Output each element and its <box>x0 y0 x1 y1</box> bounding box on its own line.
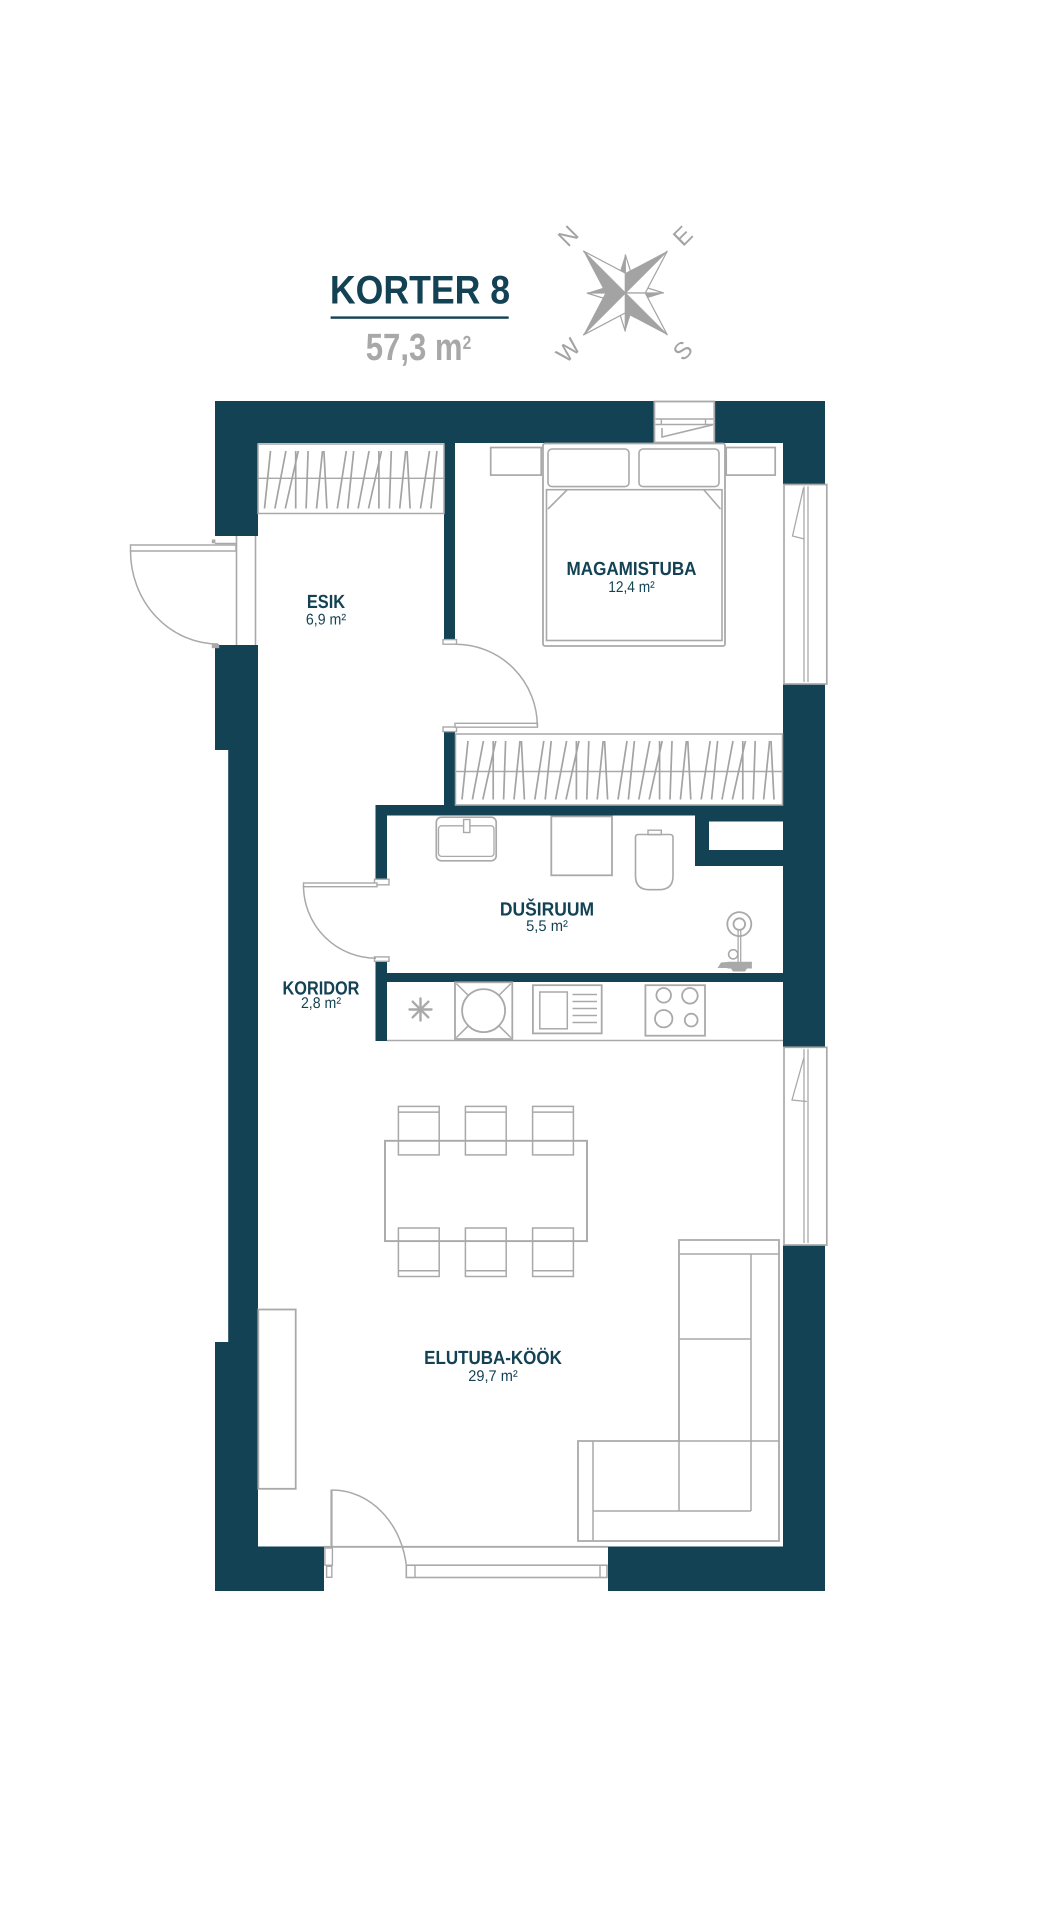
svg-text:W: W <box>551 333 586 368</box>
svg-text:57,3 m2: 57,3 m2 <box>366 327 472 369</box>
svg-text:E: E <box>668 221 698 251</box>
svg-text:12,4 m²: 12,4 m² <box>608 579 655 596</box>
svg-text:DUŠIRUUM: DUŠIRUUM <box>500 897 594 920</box>
svg-text:ESIK: ESIK <box>307 592 345 613</box>
svg-text:N: N <box>553 221 584 252</box>
svg-text:MAGAMISTUBA: MAGAMISTUBA <box>567 559 697 580</box>
svg-text:5,5 m²: 5,5 m² <box>526 918 568 935</box>
svg-text:6,9 m²: 6,9 m² <box>306 612 346 629</box>
svg-text:S: S <box>668 336 698 366</box>
svg-text:29,7 m²: 29,7 m² <box>468 1368 517 1385</box>
svg-text:ELUTUBA-KÖÖK: ELUTUBA-KÖÖK <box>424 1347 562 1369</box>
svg-text:KORTER 8: KORTER 8 <box>330 269 510 313</box>
svg-text:2,8 m²: 2,8 m² <box>301 995 341 1012</box>
